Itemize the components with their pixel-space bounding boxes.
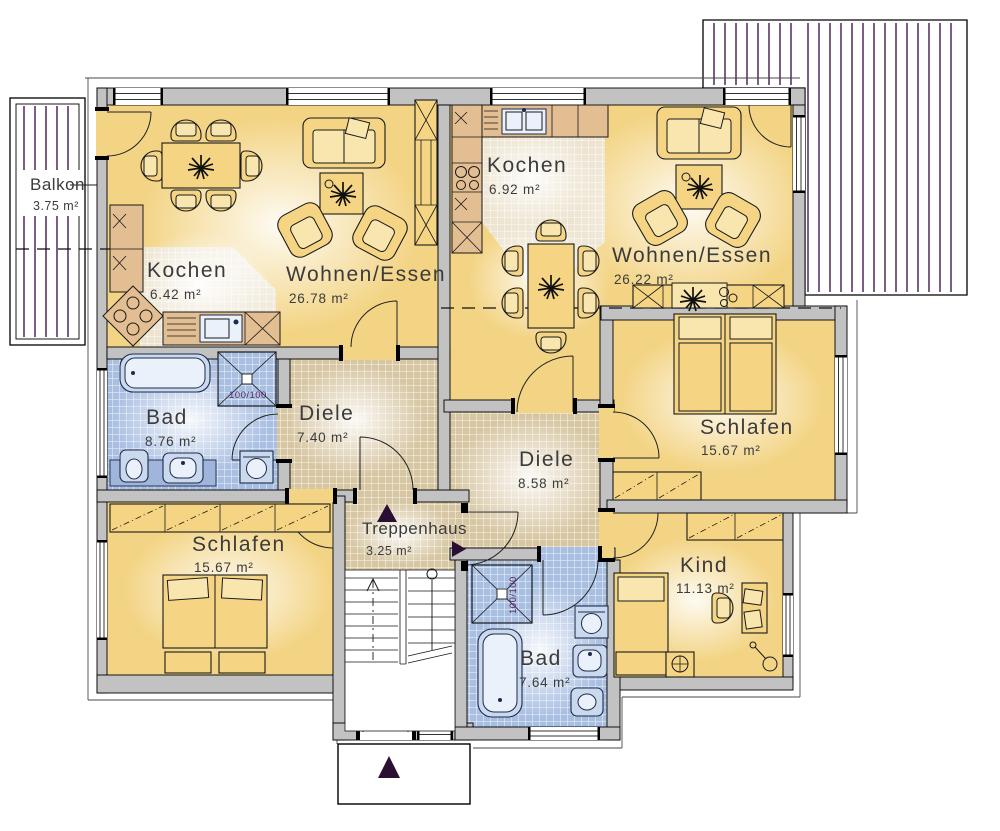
label-kochen-right-area: 6.92 m² bbox=[489, 182, 540, 197]
wall-bottom-left bbox=[97, 675, 349, 693]
floor-plan-drawing: Balkon 3.75 m² Kochen 6.42 m² Wohnen/Ess… bbox=[0, 0, 1000, 831]
label-diele-left: Diele bbox=[299, 402, 354, 425]
label-diele-right: Diele bbox=[519, 448, 574, 471]
coffee-table-right bbox=[676, 165, 722, 209]
bed-single-kind bbox=[614, 573, 668, 677]
sofa-right bbox=[657, 107, 741, 159]
label-wohnen-left: Wohnen/Essen bbox=[286, 263, 446, 286]
label-schlafen-left-area: 15.67 m² bbox=[194, 560, 254, 575]
window-top-1 bbox=[113, 88, 163, 105]
label-diele-right-area: 8.58 m² bbox=[518, 476, 569, 491]
toilet-right bbox=[571, 688, 603, 716]
sofa-left bbox=[303, 118, 385, 168]
washing-machine-right bbox=[575, 606, 608, 638]
label-schlafen-left: Schlafen bbox=[192, 533, 286, 556]
wall-kind-bottom bbox=[607, 677, 793, 690]
sink-right bbox=[573, 645, 607, 677]
label-wohnen-left-area: 26.78 m² bbox=[289, 291, 349, 306]
cabinet-left bbox=[415, 100, 437, 245]
floor-plan-page: Balkon 3.75 m² Kochen 6.42 m² Wohnen/Ess… bbox=[0, 0, 1000, 831]
stairs bbox=[345, 569, 455, 731]
window-top-3 bbox=[490, 88, 586, 105]
sink-left bbox=[163, 453, 203, 483]
label-schlafen-right: Schlafen bbox=[700, 416, 794, 439]
washing-machine-left bbox=[240, 451, 273, 483]
wall-stairs-right bbox=[455, 548, 467, 740]
label-balkon: Balkon bbox=[30, 175, 85, 194]
label-schlafen-right-area: 15.67 m² bbox=[701, 443, 761, 458]
wardrobe-kind bbox=[687, 513, 783, 540]
shower-right bbox=[472, 565, 532, 623]
label-bad-right-area: 7.64 m² bbox=[519, 675, 570, 690]
window-schlafen-left bbox=[97, 540, 107, 640]
entrance-porch bbox=[338, 744, 470, 804]
label-bad-right: Bad bbox=[520, 647, 562, 670]
label-wohnen-right-area: 26.22 m² bbox=[614, 272, 674, 287]
label-treppenhaus: Treppenhaus bbox=[362, 519, 467, 538]
window-kind bbox=[783, 593, 793, 657]
label-diele-left-area: 7.40 m² bbox=[297, 430, 348, 445]
label-shower-left-size: 100/100 bbox=[229, 390, 267, 401]
window-bad-right bbox=[528, 727, 600, 740]
plant-table-kind bbox=[666, 652, 694, 677]
toilet-left bbox=[120, 450, 148, 482]
bed-double-right bbox=[674, 314, 776, 414]
window-top-4 bbox=[723, 88, 791, 105]
label-shower-right-size: 100/100 bbox=[508, 576, 519, 614]
wall-center bbox=[438, 105, 450, 502]
window-schlafen-right bbox=[835, 355, 847, 455]
window-top-2 bbox=[286, 88, 390, 105]
label-kochen-left: Kochen bbox=[147, 259, 227, 282]
wardrobe-schlafen-left bbox=[110, 504, 330, 532]
window-wohnen-right bbox=[793, 115, 805, 193]
label-treppenhaus-area: 3.25 m² bbox=[366, 544, 412, 558]
window-bad-left bbox=[97, 368, 107, 478]
label-kind: Kind bbox=[680, 554, 728, 577]
label-kind-area: 11.13 m² bbox=[676, 581, 735, 596]
label-wohnen-right: Wohnen/Essen bbox=[612, 244, 772, 267]
wall-schlafenR-bottom bbox=[607, 500, 847, 513]
wardrobe-schlafen-right bbox=[613, 472, 701, 500]
wall-top bbox=[97, 88, 805, 105]
label-bad-left-area: 8.76 m² bbox=[145, 434, 196, 449]
label-balkon-area: 3.75 m² bbox=[33, 199, 79, 213]
label-kochen-right: Kochen bbox=[487, 154, 567, 177]
label-bad-left: Bad bbox=[146, 406, 188, 429]
sideboard-right bbox=[633, 283, 784, 311]
coffee-table-left bbox=[320, 173, 363, 214]
wall-stairs-left bbox=[333, 496, 345, 740]
label-kochen-left-area: 6.42 m² bbox=[150, 287, 201, 302]
